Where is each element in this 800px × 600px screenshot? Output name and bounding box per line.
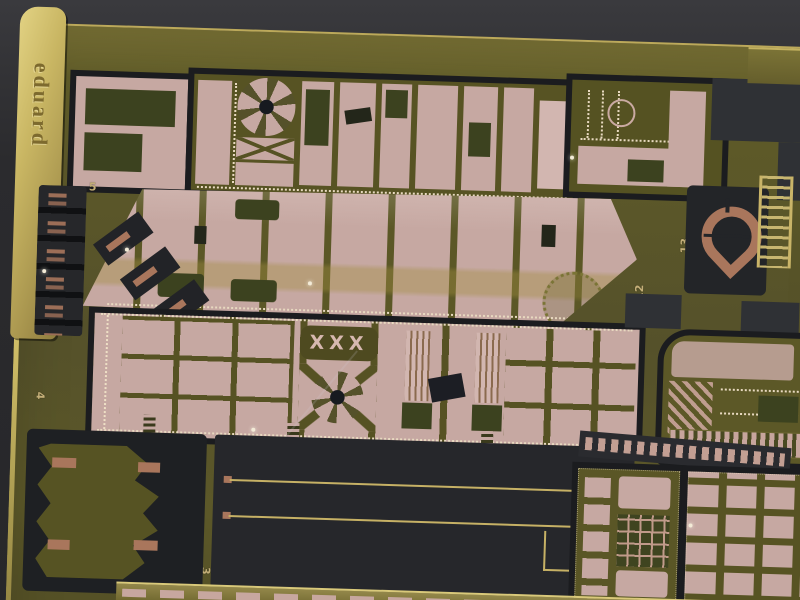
deck-window: [468, 122, 491, 157]
panel-grid-right: [503, 328, 637, 448]
deck-window: [627, 159, 664, 182]
deck-window: [230, 279, 277, 302]
top-left-panel-part: [73, 76, 188, 189]
stepped-brass-part: [747, 47, 800, 86]
rivet-column: [587, 90, 591, 138]
pad-panel-b-part: [683, 471, 800, 600]
mast-base-pad: [471, 405, 502, 432]
star-wheel-cutout: [237, 77, 297, 137]
deck-panel: [337, 82, 376, 187]
deck-panel: [537, 101, 572, 190]
large-pad: [615, 570, 668, 598]
deck-window: [304, 89, 330, 146]
hull-pink-patch: [671, 341, 794, 381]
fret-sheet-group: eduard: [0, 22, 800, 600]
cleat-strip-parts: [34, 185, 87, 336]
mast-etch-part: [404, 330, 430, 401]
large-pad: [618, 476, 671, 510]
brand-text: eduard: [26, 62, 55, 148]
plate-copper-tab: [138, 462, 160, 473]
mast-base-pad: [401, 402, 432, 429]
lattice-grid-part: [616, 514, 670, 568]
plate-copper-tab: [47, 539, 69, 550]
cutout-patch: [741, 301, 800, 337]
mast-etch-part: [474, 333, 500, 404]
teardrop-cutout: [684, 185, 769, 296]
deck-panel: [235, 162, 294, 187]
railing-wire: [230, 479, 618, 493]
railing-cutout-window: [210, 435, 635, 600]
top-right-panel-part: [569, 80, 724, 197]
teardrop-slit: [725, 198, 729, 212]
punched-hole: [428, 373, 466, 403]
top-left-dark-panel-b: [83, 132, 142, 172]
slot-hole: [194, 226, 207, 244]
lower-deck-part: XXX: [91, 313, 640, 452]
l-shaped-panel-arm: [667, 91, 706, 188]
part-number-5: 5: [89, 180, 97, 193]
stepped-cutout: [711, 78, 800, 144]
bracket-copper-bar: [132, 266, 157, 287]
deck-window: [758, 396, 799, 423]
small-pad-column: [581, 477, 611, 596]
top-deck-part: [191, 74, 576, 202]
slot-hole: [541, 225, 556, 247]
rivet-row: [721, 388, 800, 393]
deck-panel: [501, 87, 534, 192]
plate-copper-tab: [133, 540, 157, 551]
tread-plate-xxx: XXX: [300, 325, 379, 361]
octagon-plate-cutout: [22, 429, 207, 597]
deck-window: [235, 199, 280, 220]
edge-strip: [103, 315, 117, 429]
light-glint: [125, 248, 129, 252]
deck-panel: [415, 85, 458, 190]
x-brace-panel: [236, 137, 295, 161]
cutout-patch: [625, 293, 682, 329]
hatch-circle-etch: [607, 99, 636, 128]
railing-wire-bend: [543, 531, 546, 571]
rivet-column: [601, 91, 605, 139]
edge-ladder-part: [757, 175, 794, 268]
tread-plate-part: XXX: [300, 325, 379, 361]
top-left-dark-panel-a: [85, 88, 176, 127]
light-glint: [42, 269, 46, 273]
deck-window: [385, 90, 408, 119]
deck-panel: [195, 80, 232, 185]
railing-wire: [229, 515, 617, 529]
pad-panel-a-part: [573, 468, 680, 600]
plate-copper-tab: [52, 457, 76, 468]
part-number-4: 4: [33, 391, 46, 399]
photo-canvas: eduard: [0, 0, 800, 600]
